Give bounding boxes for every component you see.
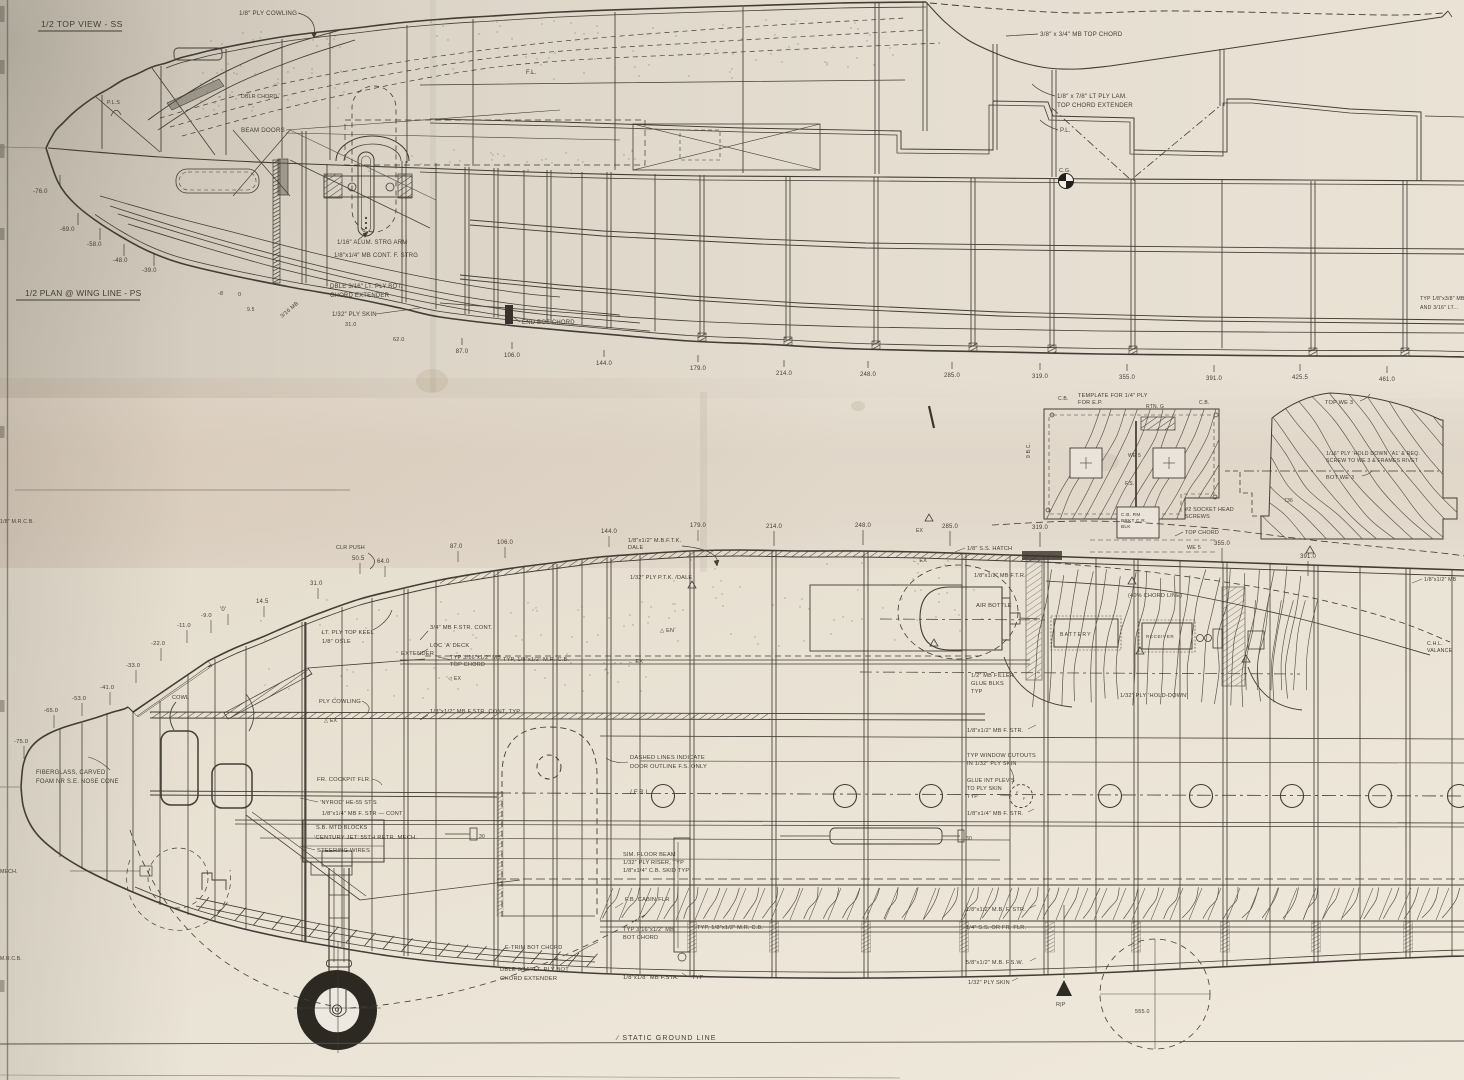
svg-text:/ F.R.L.: / F.R.L. (630, 789, 651, 796)
svg-text:1/8″ x 7/8″ LT PLY LAM.: 1/8″ x 7/8″ LT PLY LAM. (1057, 93, 1127, 100)
svg-text:31.0: 31.0 (345, 322, 357, 328)
svg-text:-75.0: -75.0 (14, 739, 28, 745)
svg-text:106.0: 106.0 (497, 540, 513, 546)
svg-text:1/8″x1/4″ C.B. SKID TYP: 1/8″x1/4″ C.B. SKID TYP (623, 868, 689, 874)
svg-text:EX: EX (916, 528, 924, 534)
svg-text:1/32″ PLY SKIN: 1/32″ PLY SKIN (332, 312, 377, 318)
svg-text:DBLR CHORD: DBLR CHORD (241, 94, 277, 100)
svg-text:FOR E.P.: FOR E.P. (1078, 400, 1103, 406)
svg-text:FR. COCKPIT FLR.: FR. COCKPIT FLR. (317, 777, 371, 783)
svg-text:285.0: 285.0 (944, 373, 960, 379)
svg-text:PLY COWLING: PLY COWLING (319, 699, 361, 705)
svg-text:1/32″ PLY ‘HOLD-DOWN’: 1/32″ PLY ‘HOLD-DOWN’ (1120, 693, 1188, 699)
svg-text:425.5: 425.5 (1292, 375, 1308, 381)
svg-text:LT. PLY TOP KEEL: LT. PLY TOP KEEL (322, 630, 375, 636)
svg-text:#2 SOCKET HEAD: #2 SOCKET HEAD (1185, 507, 1234, 513)
svg-text:P.L.S: P.L.S (107, 100, 120, 106)
svg-text:TYP, 1/8″x1/2″ M.R. C.B.: TYP, 1/8″x1/2″ M.R. C.B. (697, 925, 763, 931)
svg-text:TYP 1/8″x3/8″ MB: TYP 1/8″x3/8″ MB (1420, 296, 1464, 302)
svg-text:391.0: 391.0 (1300, 554, 1316, 560)
svg-text:SIM. FLOOR BEAM: SIM. FLOOR BEAM (623, 852, 676, 858)
svg-text:△ EX: △ EX (324, 718, 337, 724)
svg-text:-9.0: -9.0 (201, 613, 212, 619)
svg-text:F.S.: F.S. (1125, 481, 1134, 487)
svg-text:179.0: 179.0 (690, 523, 706, 529)
svg-text:WE 5: WE 5 (1128, 453, 1141, 459)
svg-text:30: 30 (966, 836, 972, 842)
svg-text:-22.0: -22.0 (151, 641, 165, 647)
svg-text:248.0: 248.0 (860, 372, 876, 378)
svg-text:END BOT CHORD: END BOT CHORD (522, 320, 575, 326)
svg-text:AND 3/16″ LT...: AND 3/16″ LT... (1420, 305, 1458, 311)
svg-text:-33.0: -33.0 (126, 663, 140, 669)
svg-text:R|P: R|P (1056, 1002, 1066, 1008)
svg-text:TYP: TYP (967, 794, 978, 800)
svg-text:248.0: 248.0 (855, 523, 871, 529)
svg-text:RECEIVER: RECEIVER (1146, 634, 1174, 639)
svg-text:TOP CHORD: TOP CHORD (450, 662, 485, 668)
svg-text:← EX: ← EX (628, 659, 643, 665)
svg-text:FIBERGLASS, CARVED: FIBERGLASS, CARVED (36, 770, 106, 776)
svg-text:179.0: 179.0 (690, 366, 706, 372)
svg-text:1/8″ OSLE: 1/8″ OSLE (322, 639, 351, 645)
svg-text:-65.0: -65.0 (44, 708, 58, 714)
svg-text:P.L.: P.L. (1060, 128, 1071, 134)
svg-text:1/16″ ALUM. STRG ARM: 1/16″ ALUM. STRG ARM (337, 240, 407, 246)
svg-text:214.0: 214.0 (776, 371, 792, 377)
svg-text:TYP, 1/8″x1/2″ M.R. C.B.: TYP, 1/8″x1/2″ M.R. C.B. (503, 657, 569, 663)
svg-text:1/8″x1/2″ MB F.STR. CONT. TYP: 1/8″x1/2″ MB F.STR. CONT. TYP (430, 709, 520, 715)
svg-text:62.0: 62.0 (393, 337, 405, 343)
svg-text:9 B.C.: 9 B.C. (1026, 443, 1032, 458)
svg-text:TYP 3/16″x1/2″ MB: TYP 3/16″x1/2″ MB (450, 655, 501, 661)
svg-text:1/32″ PLY SKIN: 1/32″ PLY SKIN (968, 980, 1010, 986)
svg-text:C.B. RM: C.B. RM (1121, 512, 1141, 518)
svg-text:391.0: 391.0 (1206, 376, 1222, 382)
svg-text:3/8″ x 3/4″ MB TOP CHORD: 3/8″ x 3/4″ MB TOP CHORD (1040, 31, 1123, 38)
svg-text:BOT CHORD: BOT CHORD (623, 935, 658, 941)
svg-text:1/8″ S.S. HATCH: 1/8″ S.S. HATCH (967, 546, 1012, 552)
svg-text:87.0: 87.0 (456, 349, 469, 355)
svg-text:FOAM NR S.E. NOSE CONE: FOAM NR S.E. NOSE CONE (36, 779, 119, 785)
svg-text:1/8″x1/4″ MB CONT. F. STRG: 1/8″x1/4″ MB CONT. F. STRG (334, 253, 418, 259)
svg-text:1/32″ PLY P.T.K. /DALE: 1/32″ PLY P.T.K. /DALE (630, 575, 692, 581)
svg-text:'0': '0' (220, 607, 226, 613)
svg-text:TYP WINDOW CUTOUTS: TYP WINDOW CUTOUTS (967, 753, 1036, 759)
svg-text:14.5: 14.5 (256, 599, 269, 605)
svg-text:9.5: 9.5 (247, 307, 255, 313)
svg-text:TO PLY SKIN: TO PLY SKIN (967, 786, 1002, 792)
svg-text:1/8″x1/2″ MB F.T.R.: 1/8″x1/2″ MB F.T.R. (974, 573, 1026, 579)
svg-text:1/8″x1/4″ MB F. STR.: 1/8″x1/4″ MB F. STR. (967, 811, 1024, 817)
svg-text:GLUE BLKS: GLUE BLKS (971, 681, 1004, 687)
svg-text:DALE: DALE (628, 545, 643, 551)
svg-text:F: F (1023, 796, 1026, 801)
svg-text:1/8″x1/2″ M.B. F. STR.: 1/8″x1/2″ M.B. F. STR. (966, 907, 1026, 913)
svg-text:144.0: 144.0 (596, 361, 612, 367)
svg-text:1/8″ PLY COWLING: 1/8″ PLY COWLING (239, 10, 297, 17)
svg-text:MECH.: MECH. (0, 869, 18, 875)
svg-text:87.0: 87.0 (450, 544, 463, 550)
svg-text:TOP CHORD: TOP CHORD (1185, 530, 1219, 536)
svg-text:1/2″ MB FILLER: 1/2″ MB FILLER (971, 673, 1014, 679)
svg-text:AIR BOTTLE: AIR BOTTLE (976, 603, 1012, 609)
svg-text:50.5: 50.5 (352, 556, 365, 562)
svg-text:1/32″ PLY RISER, TYP: 1/32″ PLY RISER, TYP (623, 860, 684, 866)
svg-text:355.0: 355.0 (1119, 375, 1135, 381)
svg-text:DASHED LINES INDICATE: DASHED LINES INDICATE (630, 755, 705, 761)
svg-text:106.0: 106.0 (504, 353, 520, 359)
svg-text:-41.0: -41.0 (100, 685, 114, 691)
svg-text:1/8″x1/8″ MB F.STA.: 1/8″x1/8″ MB F.STA. (623, 975, 679, 981)
svg-text:EXTENDER: EXTENDER (401, 651, 434, 657)
svg-text:‘CENTURY JET’ 55TH RETR. MECH.: ‘CENTURY JET’ 55TH RETR. MECH. (314, 835, 417, 841)
svg-text:319.0: 319.0 (1032, 525, 1048, 531)
svg-text:CHORD EXTENDER: CHORD EXTENDER (330, 293, 390, 299)
svg-text:1/8″x1/2″ MB F. STR.: 1/8″x1/2″ MB F. STR. (967, 728, 1024, 734)
svg-text:0: 0 (238, 292, 241, 298)
svg-text:TOP WE 3: TOP WE 3 (1325, 400, 1353, 406)
svg-text:355.0: 355.0 (1214, 541, 1230, 547)
svg-text:F.B. CABIN FLR: F.B. CABIN FLR (625, 897, 670, 903)
svg-text:-8: -8 (218, 291, 223, 297)
svg-text:TOP CHORD EXTENDER: TOP CHORD EXTENDER (1057, 102, 1133, 109)
svg-text:F: F (1016, 790, 1019, 795)
svg-text:736: 736 (1284, 498, 1293, 504)
svg-text:-11.0: -11.0 (177, 623, 191, 629)
svg-text:△ EN: △ EN (660, 628, 674, 634)
svg-text:1/8″x1/2″ MB: 1/8″x1/2″ MB (1424, 577, 1457, 583)
svg-text:∕ STATIC GROUND LINE: ∕ STATIC GROUND LINE (615, 1035, 717, 1042)
svg-text:1/4″ S.S. OR FR. FLR.: 1/4″ S.S. OR FR. FLR. (966, 925, 1027, 931)
svg-text:S.B. MTD BLOCKS: S.B. MTD BLOCKS (316, 825, 368, 831)
svg-text:-58.0: -58.0 (87, 242, 102, 248)
svg-text:64.0: 64.0 (377, 559, 390, 565)
svg-text:5/8″x1/2″ M.B. F.S.W.: 5/8″x1/2″ M.B. F.S.W. (966, 960, 1024, 966)
svg-text:← EX: ← EX (912, 558, 927, 564)
svg-text:CHORD EXTENDER: CHORD EXTENDER (500, 976, 557, 982)
svg-text:BRKT C.R.: BRKT C.R. (1121, 518, 1146, 524)
svg-text:STEERING WIRES: STEERING WIRES (317, 848, 370, 854)
svg-text:-39.0: -39.0 (142, 268, 157, 274)
svg-text:30: 30 (479, 834, 485, 840)
svg-text:SCREW TO WE 3 & FRAMES RIVET: SCREW TO WE 3 & FRAMES RIVET (1326, 458, 1419, 464)
svg-text:C.B.: C.B. (1199, 400, 1210, 406)
svg-text:1/8″ M.R.C.B.: 1/8″ M.R.C.B. (0, 519, 34, 525)
svg-text:DBLE 3/16″ LT. PLY BOT: DBLE 3/16″ LT. PLY BOT (500, 967, 569, 973)
svg-text:GLUE INT PLEV’S: GLUE INT PLEV’S (967, 778, 1015, 784)
svg-text:1/2 PLAN @ WING LINE - PS: 1/2 PLAN @ WING LINE - PS (25, 288, 142, 298)
svg-text:WE 5: WE 5 (1187, 545, 1201, 551)
svg-text:214.0: 214.0 (766, 524, 782, 530)
svg-text:E-TRIM BOT CHORD: E-TRIM BOT CHORD (505, 945, 562, 951)
svg-text:319.0: 319.0 (1032, 374, 1048, 380)
svg-text:IN 1/32″ PLY SKIN: IN 1/32″ PLY SKIN (967, 761, 1017, 767)
svg-text:-76.0: -76.0 (33, 189, 48, 195)
svg-text:RTN. G: RTN. G (1146, 404, 1164, 410)
svg-text:1/8″x1/4″ MB F. STR — CONT: 1/8″x1/4″ MB F. STR — CONT (322, 811, 403, 817)
svg-text:461.0: 461.0 (1379, 377, 1395, 383)
svg-text:M.R.C.B.: M.R.C.B. (0, 956, 22, 962)
svg-text:C.B.: C.B. (1058, 396, 1069, 402)
svg-text:C.H.L.: C.H.L. (1427, 641, 1443, 647)
svg-text:DOOR OUTLINE F.S. ONLY: DOOR OUTLINE F.S. ONLY (630, 764, 707, 770)
svg-text:DBLE 3/16″ LT. PLY BOT.: DBLE 3/16″ LT. PLY BOT. (330, 284, 403, 290)
svg-text:1/16″ PLY ‘HOLD DOWN’ ‘A1’ & R: 1/16″ PLY ‘HOLD DOWN’ ‘A1’ & REQ. (1326, 451, 1420, 457)
svg-text:1/8″x1/2″ M.B.F.T.K.: 1/8″x1/2″ M.B.F.T.K. (628, 538, 682, 544)
svg-text:CLR PUSH: CLR PUSH (336, 545, 365, 551)
svg-text:555.0: 555.0 (1135, 1009, 1150, 1015)
svg-text:144.0: 144.0 (601, 529, 617, 535)
svg-text:BLK: BLK (1121, 524, 1131, 530)
svg-text:TYP 3/16″x1/2″ MB: TYP 3/16″x1/2″ MB (623, 927, 674, 933)
svg-text:3/4″ MB F.STR. CONT.: 3/4″ MB F.STR. CONT. (430, 625, 493, 631)
svg-text:BATTERY: BATTERY (1060, 632, 1092, 638)
svg-text:285.0: 285.0 (942, 524, 958, 530)
svg-text:(40% CHORD LINE): (40% CHORD LINE) (1128, 593, 1182, 599)
svg-text:-69.0: -69.0 (60, 227, 75, 233)
svg-text:1/2 TOP VIEW - SS: 1/2 TOP VIEW - SS (41, 19, 123, 29)
svg-text:BEAM DOORS: BEAM DOORS (241, 127, 285, 134)
svg-text:◁ EX: ◁ EX (448, 676, 461, 682)
svg-text:SCREWS: SCREWS (1185, 514, 1210, 520)
svg-text:-48.0: -48.0 (113, 258, 128, 264)
svg-text:BOT WE 3: BOT WE 3 (1326, 475, 1354, 481)
svg-text:TYP: TYP (971, 689, 983, 695)
svg-text:TYP: TYP (692, 975, 704, 981)
svg-text:TEMPLATE FOR 1/4″ PLY: TEMPLATE FOR 1/4″ PLY (1078, 393, 1148, 399)
svg-text:VALANCE: VALANCE (1427, 648, 1453, 654)
svg-text:COWL: COWL (172, 695, 189, 701)
svg-text:31.0: 31.0 (310, 581, 323, 587)
svg-text:-53.0: -53.0 (72, 696, 86, 702)
svg-text:‘NYROD’ HE-55 ST.S: ‘NYROD’ HE-55 ST.S (320, 800, 377, 806)
